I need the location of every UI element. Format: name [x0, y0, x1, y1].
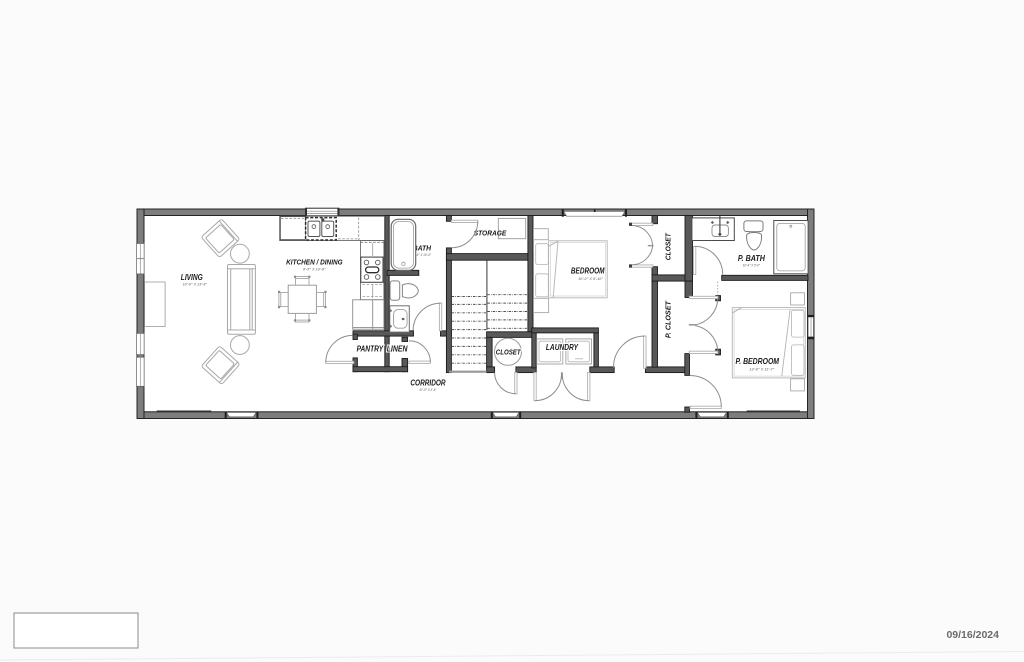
svg-text:10'-0" X 9'-10": 10'-0" X 9'-10" — [578, 276, 603, 281]
svg-text:PANTRY: PANTRY — [357, 345, 384, 354]
svg-text:P. BATH: P. BATH — [738, 254, 765, 263]
svg-text:KITCHEN / DINING: KITCHEN / DINING — [286, 257, 343, 266]
svg-text:LIVING: LIVING — [181, 272, 203, 282]
svg-text:CLOSET: CLOSET — [664, 233, 673, 261]
svg-text:BEDROOM: BEDROOM — [571, 267, 605, 276]
svg-text:47'-5" X 3'-6": 47'-5" X 3'-6" — [418, 388, 437, 392]
svg-text:CLOSET: CLOSET — [496, 347, 521, 356]
svg-text:P. BEDROOM: P. BEDROOM — [736, 357, 780, 366]
svg-text:P. CLOSET: P. CLOSET — [664, 300, 673, 338]
svg-text:13'-8" X 11'-7": 13'-8" X 11'-7" — [749, 367, 774, 372]
svg-text:LAUNDRY: LAUNDRY — [546, 343, 579, 352]
svg-text:CORRIDOR: CORRIDOR — [410, 378, 446, 387]
svg-text:STORAGE: STORAGE — [474, 228, 507, 237]
svg-text:10'-0" X 13'-8": 10'-0" X 13'-8" — [183, 282, 208, 287]
svg-text:9'-5" X 13'-8": 9'-5" X 13'-8" — [303, 267, 326, 272]
svg-text:09/16/2024: 09/16/2024 — [946, 629, 999, 641]
svg-text:10'-4" X 5'-0": 10'-4" X 5'-0" — [743, 264, 761, 268]
svg-text:LINEN: LINEN — [387, 345, 408, 354]
